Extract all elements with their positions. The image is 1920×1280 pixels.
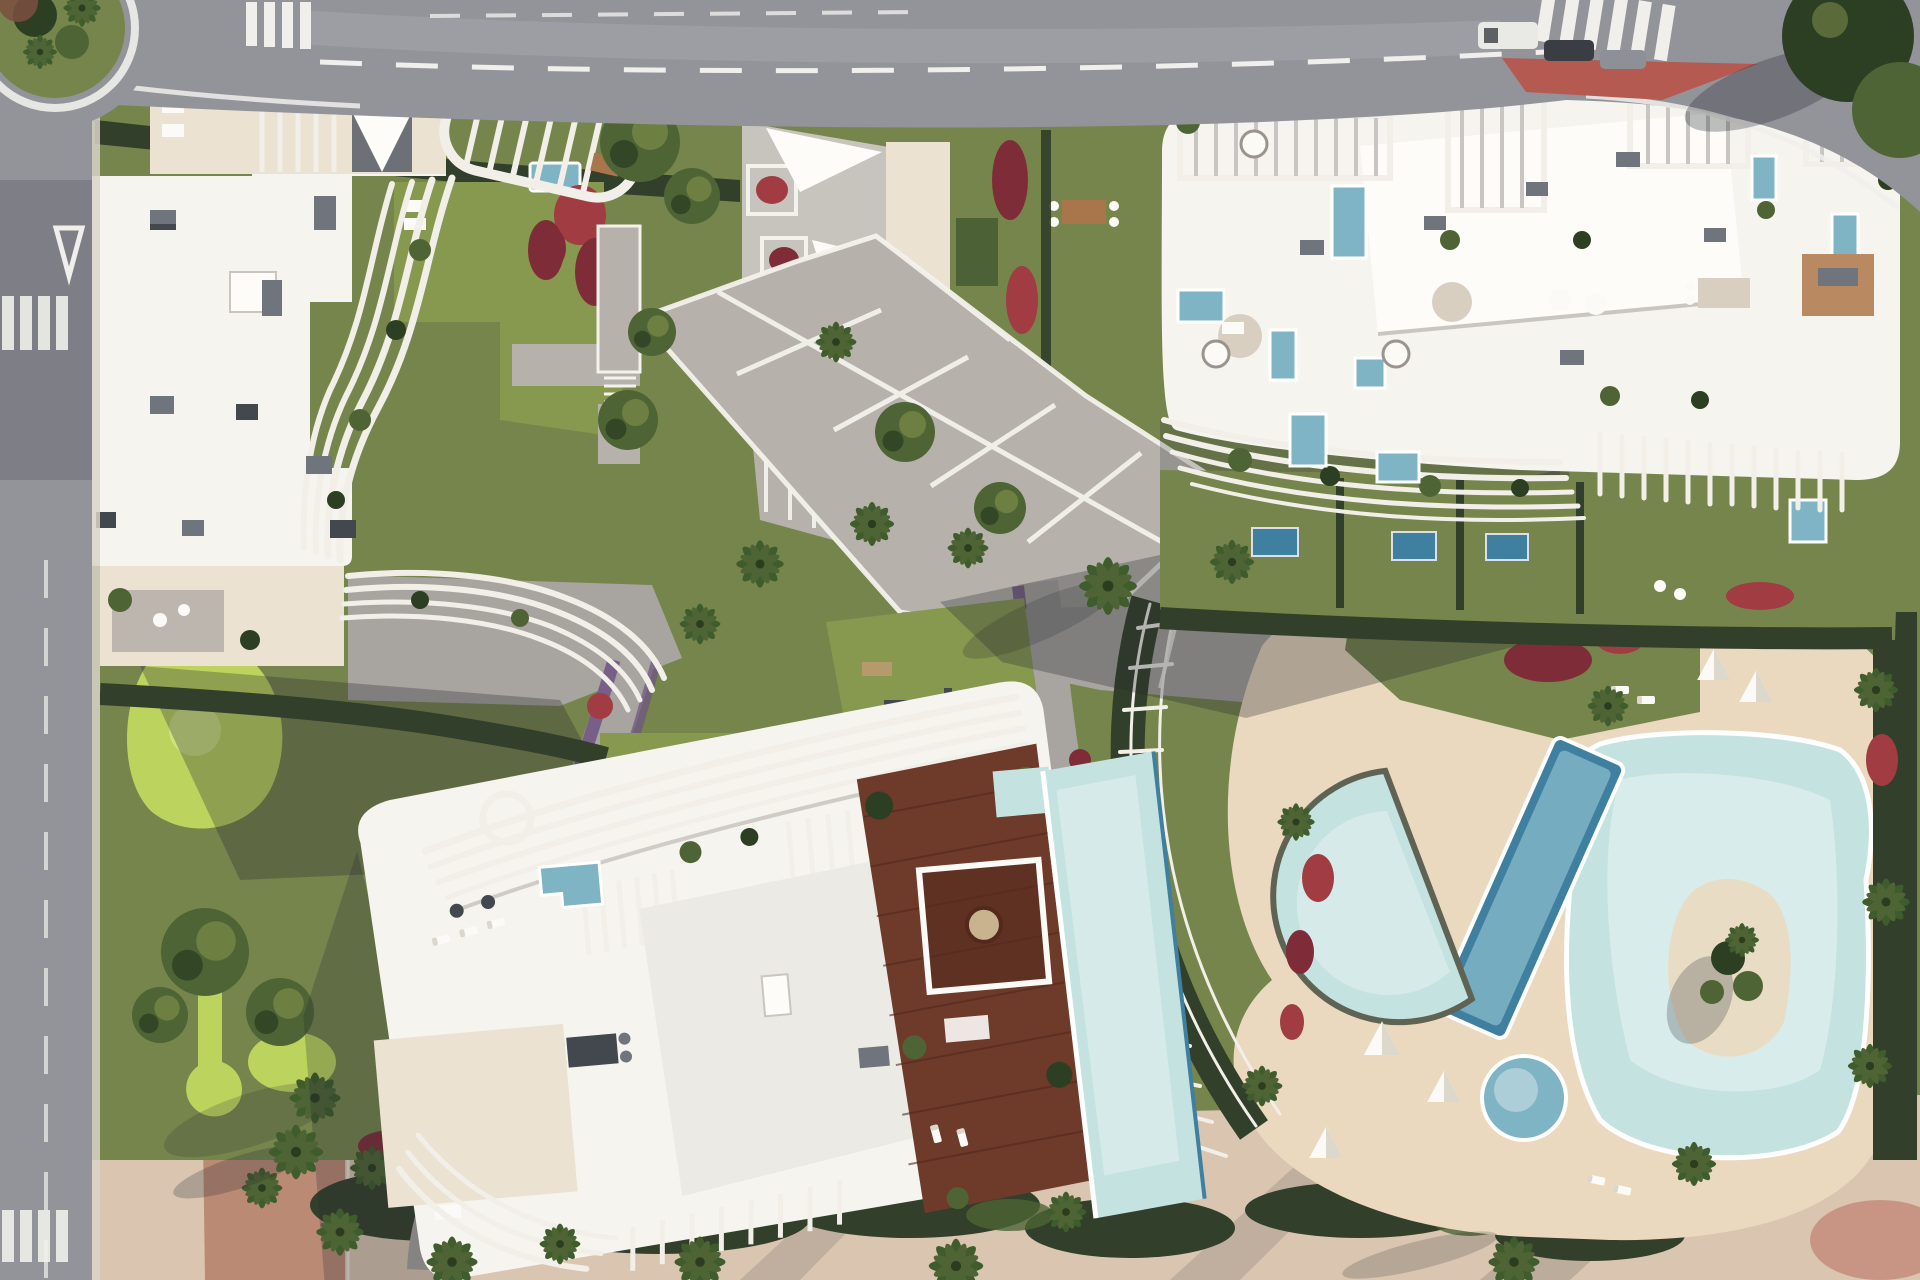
building-c-west-terrace <box>374 1024 578 1208</box>
garden-shed-roof <box>956 218 998 286</box>
aerial-render <box>0 0 1920 1280</box>
building-b-south-gardens <box>1160 470 1900 640</box>
fire-table <box>966 906 1003 943</box>
garden-dining-table <box>1062 200 1106 224</box>
aerial-render-stage <box>0 0 1920 1280</box>
